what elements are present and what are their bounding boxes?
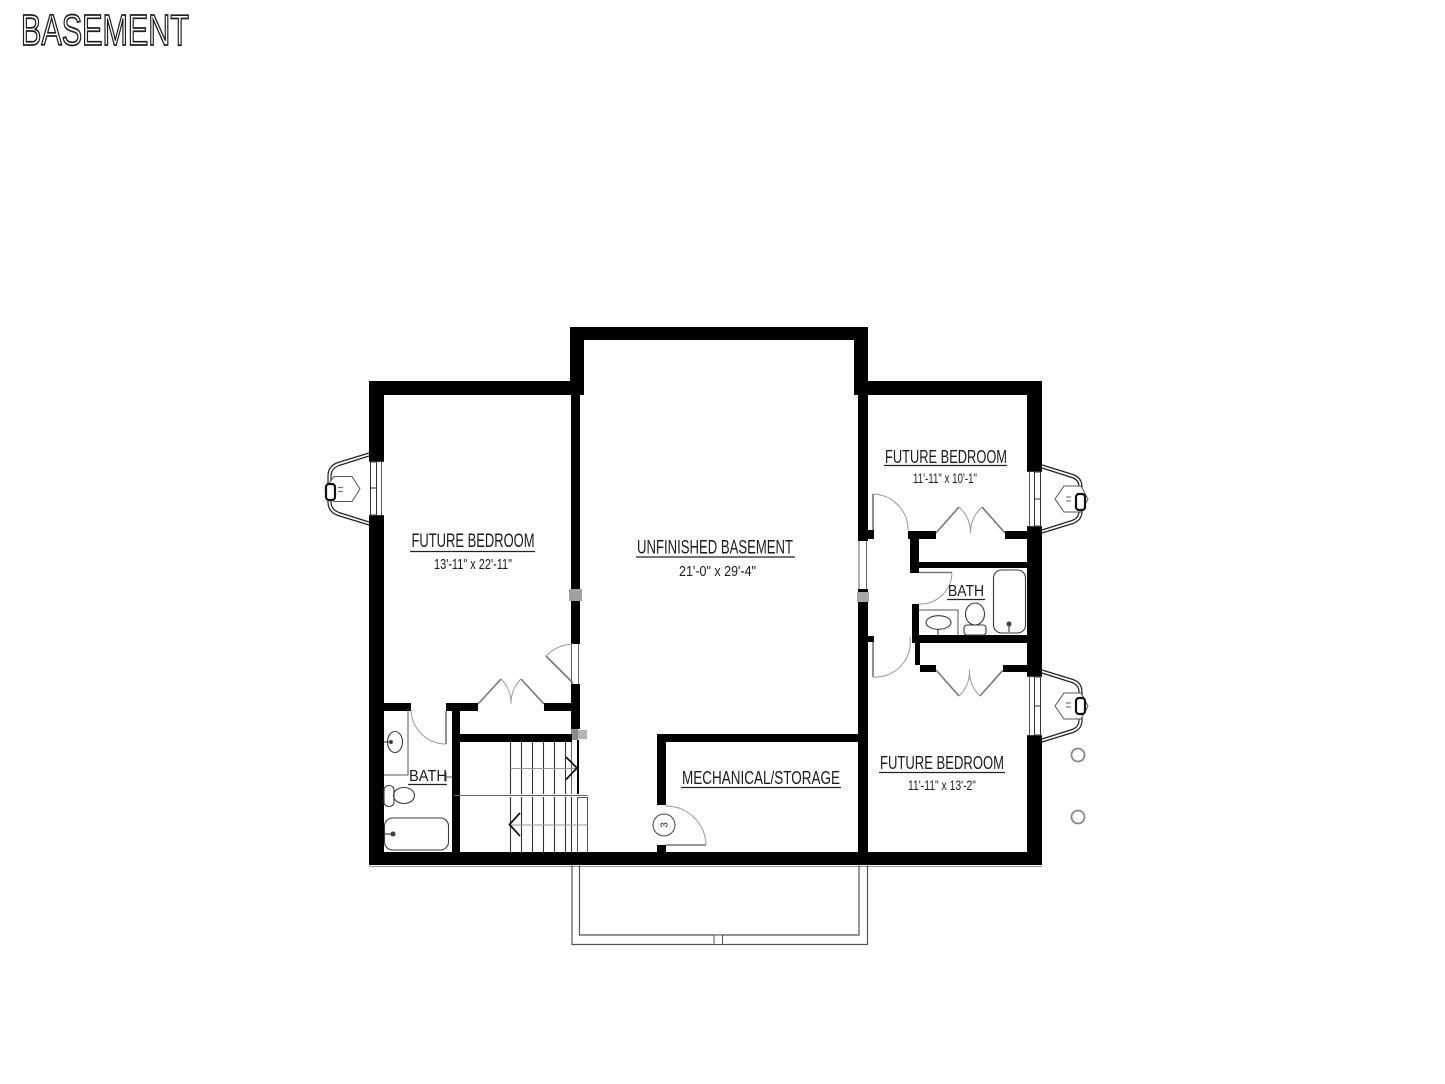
svg-text:11'-11" x 10'-1": 11'-11" x 10'-1" (913, 470, 977, 486)
svg-text:FUTURE BEDROOM: FUTURE BEDROOM (412, 531, 535, 552)
svg-text:21'-0" x 29'-4": 21'-0" x 29'-4" (679, 564, 756, 580)
svg-text:FUTURE BEDROOM: FUTURE BEDROOM (885, 447, 1007, 467)
svg-text:3: 3 (660, 822, 671, 828)
svg-text:BASEMENT: BASEMENT (21, 6, 189, 55)
svg-text:BATH: BATH (948, 583, 984, 600)
svg-text:13'-11" x 22'-11": 13'-11" x 22'-11" (434, 557, 512, 573)
svg-text:BATH: BATH (409, 768, 447, 785)
svg-text:11'-11" x 13'-2": 11'-11" x 13'-2" (908, 777, 976, 793)
svg-text:UNFINISHED BASEMENT: UNFINISHED BASEMENT (637, 538, 793, 559)
svg-text:MECHANICAL/STORAGE: MECHANICAL/STORAGE (682, 768, 840, 788)
svg-text:FUTURE BEDROOM: FUTURE BEDROOM (880, 753, 1004, 773)
